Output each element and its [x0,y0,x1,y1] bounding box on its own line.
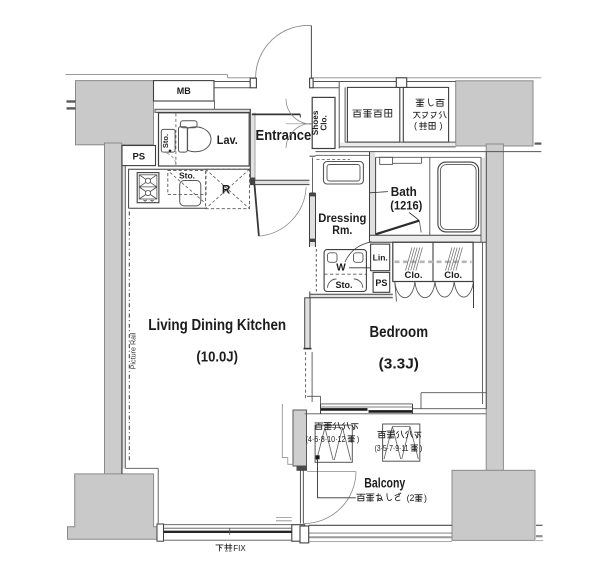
svg-text:Entrance: Entrance [256,127,312,144]
svg-text:Clo.: Clo. [405,270,423,281]
svg-text:W: W [336,263,346,274]
svg-text:): ) [357,435,360,444]
svg-text:Picture Rail: Picture Rail [129,332,138,369]
svg-text:Sto.: Sto. [179,171,195,181]
svg-text:PS: PS [132,152,145,163]
svg-text:): ) [440,121,443,131]
svg-text:(2: (2 [407,493,415,503]
svg-text:(10.0J): (10.0J) [196,350,238,366]
svg-text:): ) [424,493,427,503]
svg-text:Clo.: Clo. [320,115,329,130]
svg-text:(3·5·7·9·11: (3·5·7·9·11 [375,444,409,453]
svg-text:(1216): (1216) [390,200,422,212]
svg-text:Living Dining Kitchen: Living Dining Kitchen [148,317,286,334]
svg-text:MB: MB [177,86,191,96]
svg-text:PS: PS [375,278,387,288]
svg-text:Dressing: Dressing [318,213,366,225]
svg-text:(3.3J): (3.3J) [379,357,419,373]
svg-text:Clo.: Clo. [444,270,462,281]
svg-text:FIX: FIX [233,544,246,553]
svg-text:(: ( [414,121,417,131]
svg-text:Lav.: Lav. [217,135,238,147]
svg-text:Bedroom: Bedroom [370,324,429,341]
svg-text:Lin.: Lin. [373,253,388,263]
svg-text:Balcony: Balcony [364,475,405,490]
svg-text:Bath: Bath [391,185,417,199]
svg-text:Rm.: Rm. [332,225,352,237]
svg-text:(4·6·8·10·12: (4·6·8·10·12 [306,435,346,444]
svg-text:): ) [420,444,423,453]
svg-text:R: R [222,185,231,197]
svg-text:Sto.: Sto. [336,280,353,290]
svg-text:Sto.: Sto. [161,134,170,148]
